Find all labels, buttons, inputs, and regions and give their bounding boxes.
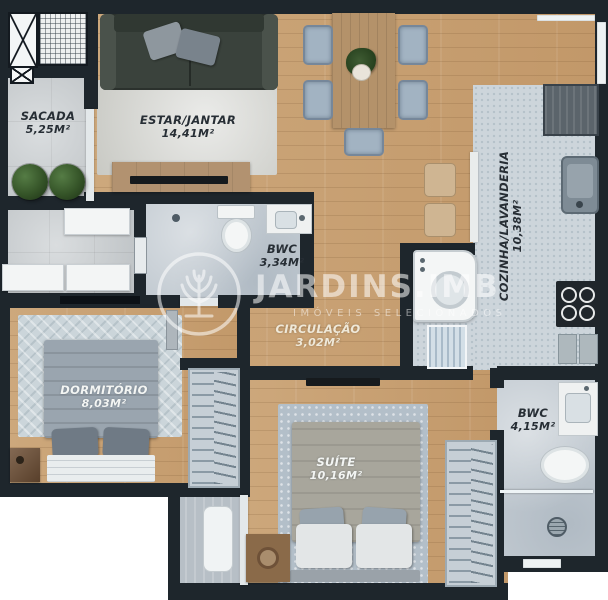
sink-basin (275, 211, 297, 229)
suite-tv (306, 378, 380, 386)
room-name: SACADA (21, 109, 75, 123)
kitchen-sink (561, 156, 599, 214)
dorm-window-bar (60, 296, 140, 304)
shower-head-icon (172, 214, 180, 222)
room-area: 10,38M² (511, 151, 525, 301)
sink-basin (565, 393, 591, 423)
counter-stool (424, 163, 456, 197)
kitchen-faucet (576, 201, 583, 208)
room-area: 4,15M² (511, 420, 556, 434)
storage-cabinet (66, 264, 130, 291)
room-area: 5,25M² (21, 123, 75, 137)
wall-left-dorm (0, 300, 10, 490)
dining-chair (303, 25, 333, 65)
room-area: 3,34M² (260, 256, 305, 270)
laundry-tank (427, 325, 467, 369)
fridge (543, 84, 599, 136)
wall-top (84, 0, 608, 14)
toilet (221, 218, 252, 253)
burner-icon (561, 305, 577, 321)
burner-icon (579, 287, 595, 303)
wardrobe-shelves (449, 444, 471, 583)
room-area: 3,02M² (276, 336, 361, 350)
faucet-icon (299, 215, 305, 221)
bwc-social-door-threshold (180, 298, 218, 306)
room-area: 14,41M² (140, 127, 236, 141)
room-label-dormitorio: DORMITÓRIO 8,03M² (60, 383, 147, 411)
washer-controls (420, 258, 425, 263)
wall-laundry-left (400, 243, 413, 370)
balcony-window-icon (8, 12, 38, 68)
suite-toilet (540, 446, 590, 484)
wall-bwc-bottom-b (218, 295, 314, 308)
stove-cooktop (556, 281, 600, 327)
kitchen-top-window (537, 15, 595, 21)
room-name: BWC (518, 406, 548, 420)
burner-icon (579, 305, 595, 321)
bed-sheet (47, 455, 155, 482)
wardrobe-dormitorio (188, 368, 240, 488)
wardrobe-hangers (214, 372, 236, 484)
shower-glass (500, 490, 593, 493)
dining-chair (303, 80, 333, 120)
tv (130, 176, 228, 184)
wardrobe-shelves (192, 372, 214, 484)
room-name: ESTAR/JANTAR (140, 113, 236, 127)
suite-bathroom-sink (558, 382, 598, 436)
room-name: BWC (267, 242, 297, 256)
dining-chair (398, 25, 428, 65)
toilet-tank (217, 205, 255, 219)
sofa-armrest (262, 14, 278, 90)
storage-cabinet (64, 208, 130, 235)
counter-stool (424, 203, 456, 237)
table-vase (352, 64, 371, 81)
ironing-board (203, 506, 233, 572)
decor-item (16, 456, 24, 464)
room-label-bwc-suite: BWC 4,15M² (511, 406, 556, 434)
room-area: 8,03M² (60, 397, 147, 411)
balcony-plant (12, 164, 48, 200)
room-label-sacada: SACADA 5,25M² (21, 109, 75, 137)
wardrobe-suite (445, 440, 497, 587)
suite-headboard (290, 570, 420, 582)
wall-bwc2-top (497, 366, 608, 380)
bed-pillow (296, 524, 352, 568)
washer-door-icon (431, 271, 469, 309)
oven-tray (558, 334, 577, 364)
room-label-bwc-social: BWC 3,34M² (260, 242, 305, 270)
storage-cabinet (2, 264, 64, 291)
wall-bwc2-left-a (490, 368, 504, 388)
suite-nightstand (246, 534, 290, 582)
room-label-suite: SUÍTE 10,16M² (310, 455, 363, 483)
ac-condenser-icon (38, 12, 88, 66)
balcony-sliding-door (86, 109, 94, 201)
dining-chair (398, 80, 428, 120)
shower-drain-icon (547, 517, 567, 537)
room-name: CIRCULAÇÃO (276, 322, 361, 336)
apartment-floor-plan: SACADA 5,25M² ESTAR/JANTAR 14,41M² BWC 3… (0, 0, 608, 600)
oven-tray (579, 334, 598, 364)
bwc-suite-window (523, 559, 561, 568)
bathroom-sink (266, 204, 312, 234)
washing-machine (413, 250, 477, 322)
balcony-window-small-icon (10, 66, 34, 84)
room-area: 10,16M² (310, 469, 363, 483)
kitchen-sink-basin (567, 164, 593, 198)
burner-icon (561, 287, 577, 303)
room-label-cozinha-lavanderia: COZINHA/LAVANDERIA 10,38M² (497, 151, 525, 301)
balcony-plant (49, 164, 85, 200)
nightstand (10, 448, 40, 482)
room-name: COZINHA/LAVANDERIA (497, 151, 511, 301)
wall-living-bottom (92, 192, 314, 204)
wall-bwc-left-a (134, 204, 146, 237)
faucet-icon (584, 386, 589, 391)
bed-pillow (356, 524, 412, 568)
storage-room-door (134, 237, 147, 274)
room-label-estar-jantar: ESTAR/JANTAR 14,41M² (140, 113, 236, 141)
dormitorio-door (166, 310, 178, 350)
room-name: DORMITÓRIO (60, 383, 147, 397)
kitchen-right-window (597, 22, 606, 84)
decor-tray-icon (257, 547, 279, 569)
dining-chair (344, 128, 384, 156)
room-name: SUÍTE (316, 455, 355, 469)
kitchen-counter-edge (470, 152, 478, 242)
wardrobe-hangers (471, 444, 493, 583)
washer-controls (420, 267, 425, 272)
room-label-circulacao: CIRCULAÇÃO 3,02M² (276, 322, 361, 350)
